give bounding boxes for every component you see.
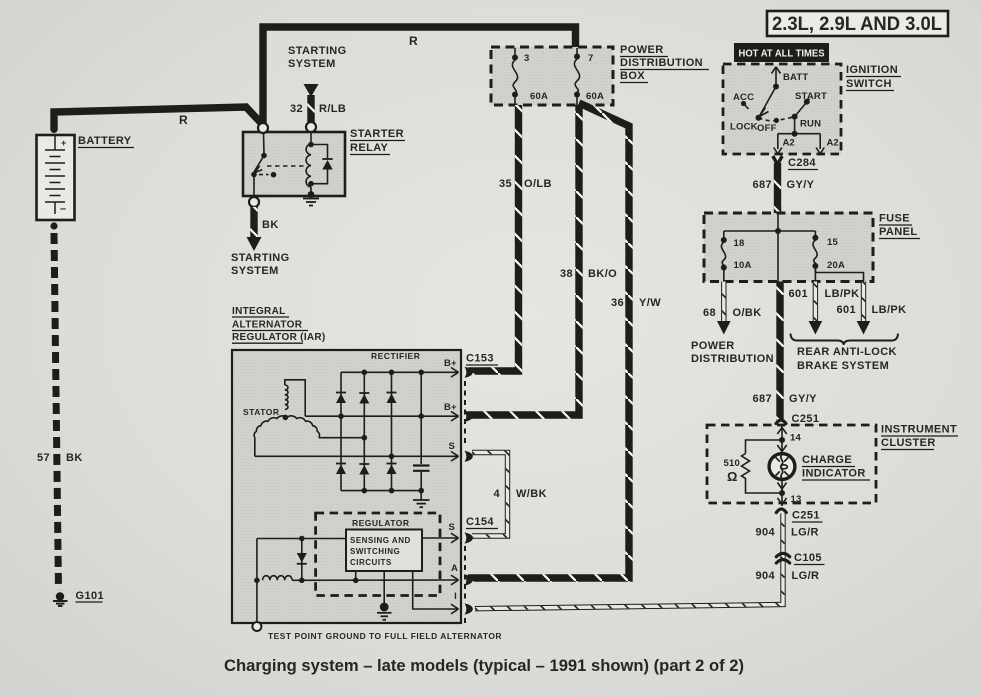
svg-text:14: 14: [790, 433, 801, 444]
svg-text:R/LB: R/LB: [319, 103, 346, 115]
svg-text:C154: C154: [466, 516, 494, 528]
svg-text:18: 18: [734, 238, 745, 249]
svg-text:A2: A2: [827, 138, 839, 149]
svg-text:SYSTEM: SYSTEM: [231, 265, 279, 277]
svg-text:POWER: POWER: [691, 340, 735, 352]
svg-text:INDICATOR: INDICATOR: [802, 468, 866, 480]
svg-text:38: 38: [560, 268, 573, 280]
svg-text:W/BK: W/BK: [516, 488, 547, 500]
svg-text:BOX: BOX: [620, 70, 645, 82]
svg-text:+: +: [61, 138, 66, 148]
svg-text:O/LB: O/LB: [524, 178, 552, 190]
svg-text:60A: 60A: [586, 91, 604, 102]
svg-text:601: 601: [836, 304, 856, 316]
svg-text:OFF: OFF: [757, 123, 777, 134]
svg-text:REAR ANTI-LOCK: REAR ANTI-LOCK: [797, 346, 897, 358]
svg-text:REGULATOR (IAR): REGULATOR (IAR): [232, 332, 326, 343]
svg-text:START: START: [795, 91, 827, 102]
svg-text:BATTERY: BATTERY: [78, 135, 132, 147]
svg-text:G101: G101: [76, 590, 105, 602]
svg-text:904: 904: [755, 527, 775, 539]
svg-text:Charging system – late models: Charging system – late models (typical –…: [224, 656, 744, 675]
svg-text:RELAY: RELAY: [350, 142, 389, 154]
svg-text:C153: C153: [466, 353, 494, 365]
svg-text:PANEL: PANEL: [879, 226, 917, 238]
svg-text:B+: B+: [444, 358, 457, 369]
svg-text:SWITCHING: SWITCHING: [350, 547, 400, 556]
svg-text:CLUSTER: CLUSTER: [881, 437, 936, 449]
svg-text:O/BK: O/BK: [733, 307, 762, 319]
svg-text:A2: A2: [783, 138, 795, 149]
svg-text:CHARGE: CHARGE: [802, 454, 852, 466]
svg-text:STATOR: STATOR: [243, 407, 280, 417]
svg-text:LG/R: LG/R: [792, 570, 820, 582]
svg-text:S: S: [448, 522, 455, 533]
svg-text:LG/R: LG/R: [791, 527, 819, 539]
svg-text:B+: B+: [444, 402, 457, 413]
svg-text:LB/PK: LB/PK: [825, 288, 860, 300]
svg-text:I: I: [454, 591, 457, 602]
svg-text:IGNITION: IGNITION: [846, 64, 898, 76]
svg-text:BRAKE SYSTEM: BRAKE SYSTEM: [797, 360, 889, 372]
svg-text:2.3L, 2.9L AND 3.0L: 2.3L, 2.9L AND 3.0L: [772, 13, 942, 35]
svg-text:GY/Y: GY/Y: [789, 393, 817, 405]
svg-text:STARTING: STARTING: [231, 252, 290, 264]
svg-text:BATT: BATT: [783, 72, 808, 83]
svg-text:13: 13: [791, 494, 802, 505]
svg-text:DISTRIBUTION: DISTRIBUTION: [620, 57, 703, 69]
svg-text:INSTRUMENT: INSTRUMENT: [881, 424, 957, 436]
svg-text:32: 32: [290, 103, 303, 115]
svg-text:BK: BK: [66, 452, 83, 464]
svg-text:68: 68: [703, 307, 716, 319]
svg-text:LOCK: LOCK: [730, 122, 758, 133]
svg-text:R: R: [179, 113, 188, 127]
svg-text:Ω: Ω: [727, 469, 737, 484]
svg-text:687: 687: [752, 393, 772, 405]
svg-text:3: 3: [524, 53, 529, 64]
svg-text:STARTING: STARTING: [288, 45, 347, 57]
svg-text:CIRCUITS: CIRCUITS: [350, 558, 392, 567]
svg-text:20A: 20A: [827, 260, 845, 271]
svg-text:C251: C251: [792, 510, 820, 522]
svg-text:REGULATOR: REGULATOR: [352, 518, 410, 528]
svg-text:35: 35: [499, 178, 512, 190]
svg-text:510: 510: [724, 458, 740, 469]
svg-text:STARTER: STARTER: [350, 128, 404, 140]
svg-text:INTEGRAL: INTEGRAL: [232, 306, 286, 317]
svg-text:S: S: [448, 441, 455, 452]
svg-text:SYSTEM: SYSTEM: [288, 58, 336, 70]
svg-text:601: 601: [788, 288, 808, 300]
svg-text:DISTRIBUTION: DISTRIBUTION: [691, 353, 774, 365]
svg-text:A: A: [451, 563, 458, 574]
svg-text:10A: 10A: [734, 260, 752, 271]
svg-text:R: R: [409, 34, 418, 48]
svg-text:BK: BK: [262, 219, 279, 231]
svg-text:RECTIFIER: RECTIFIER: [371, 351, 420, 361]
svg-text:FUSE: FUSE: [879, 213, 910, 225]
svg-text:57: 57: [37, 452, 50, 464]
svg-text:TEST POINT GROUND TO FULL FIEL: TEST POINT GROUND TO FULL FIELD ALTERNAT…: [268, 632, 502, 641]
svg-text:687: 687: [752, 179, 772, 191]
svg-text:C105: C105: [794, 552, 822, 564]
svg-text:C251: C251: [792, 413, 820, 425]
svg-text:LB/PK: LB/PK: [872, 304, 907, 316]
svg-text:POWER: POWER: [620, 44, 664, 56]
svg-text:RUN: RUN: [800, 119, 821, 130]
svg-text:ACC: ACC: [733, 92, 754, 103]
svg-text:4: 4: [493, 488, 500, 500]
svg-text:904: 904: [755, 570, 775, 582]
svg-text:GY/Y: GY/Y: [787, 179, 815, 191]
svg-text:SWITCH: SWITCH: [846, 78, 892, 90]
svg-text:15: 15: [827, 237, 838, 248]
svg-text:60A: 60A: [530, 91, 548, 102]
svg-text:ALTERNATOR: ALTERNATOR: [232, 320, 303, 331]
svg-text:–: –: [60, 203, 66, 215]
svg-text:Y/W: Y/W: [639, 297, 661, 309]
svg-text:BK/O: BK/O: [588, 268, 617, 280]
svg-text:HOT AT ALL TIMES: HOT AT ALL TIMES: [739, 48, 825, 60]
svg-text:SENSING AND: SENSING AND: [350, 536, 411, 545]
svg-text:C284: C284: [788, 157, 816, 169]
svg-text:36: 36: [611, 297, 624, 309]
svg-text:7: 7: [588, 53, 593, 64]
